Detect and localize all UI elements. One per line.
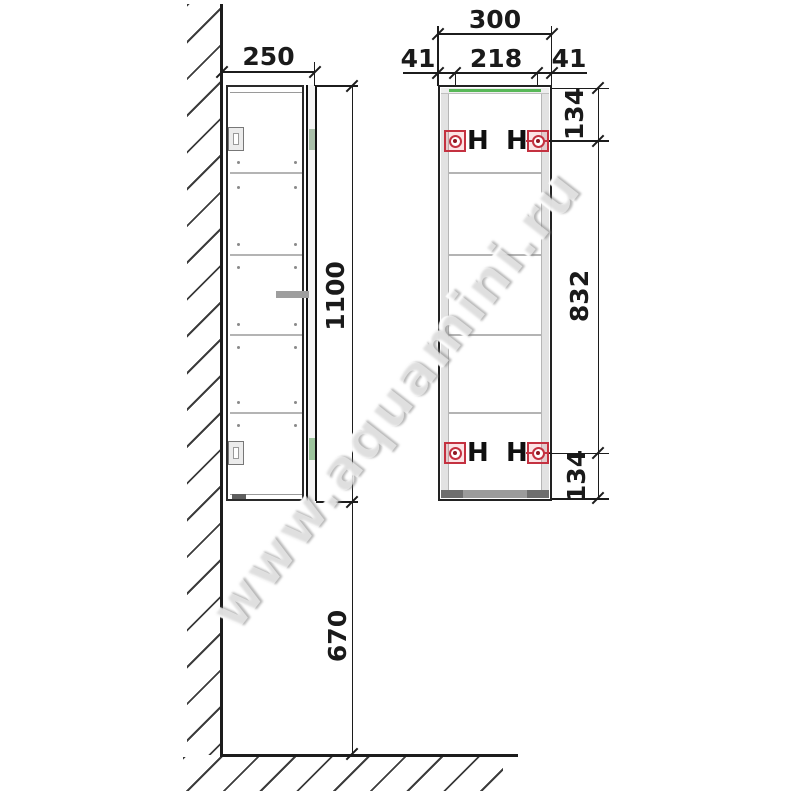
side-shelf-line [230,254,302,256]
front-bottom-foot-right [527,490,549,498]
dim-label-side-width: 250 [222,42,315,72]
hanger-center-dot [536,139,540,143]
wall-hatching [187,4,221,755]
door-hinge-mark-bottom [309,438,315,460]
side-view-inner-top-line [230,92,302,93]
screw-dot [294,266,297,269]
bracket-slot [233,133,239,145]
technical-drawing-canvas: 250 1100 670 300 41 218 41 [0,0,800,800]
side-shelf-line [230,172,302,174]
hanger-label: H [467,440,487,466]
hanger-label: H [467,128,487,154]
screw-dot [294,243,297,246]
screw-dot [294,161,297,164]
screw-dot [237,346,240,349]
screw-dot [294,346,297,349]
screw-dot [237,401,240,404]
hanger-label: H [506,440,526,466]
front-shelf-line [449,254,541,256]
front-shelf-line [449,334,541,336]
dim-label-hanger-spacing: 218 [455,44,537,74]
dim-label-bottom-margin: 134 [562,426,592,526]
bracket-slot [233,447,239,459]
screw-dot [294,186,297,189]
screw-dot [294,401,297,404]
front-bottom-foot-left [441,490,463,498]
door-handle [276,291,309,298]
hanger-label: H [506,128,526,154]
dim-label-cabinet-height: 1100 [321,246,351,346]
front-shelf-line [449,172,541,174]
wall-bracket-bottom [228,441,244,465]
floor-hatching [183,757,503,791]
door-hinge-mark-top [309,129,315,150]
hanger-marker-top-left [444,130,466,152]
front-shelf-line [449,412,541,414]
screw-dot [237,161,240,164]
side-shelf-line [230,334,302,336]
screw-dot [237,424,240,427]
hanger-center-dot [453,451,457,455]
dim-label-height-from-floor: 670 [323,586,353,686]
screw-dot [237,243,240,246]
wall-bracket-top [228,127,244,151]
screw-dot [237,266,240,269]
dim-label-left-margin: 41 [398,44,438,74]
hanger-marker-top-right [527,130,549,152]
front-top-green-rail [449,89,541,92]
dim-label-top-margin: 134 [560,64,590,164]
dim-line-134-832-134 [598,88,600,499]
hanger-center-dot [536,451,540,455]
screw-dot [294,323,297,326]
hanger-marker-bottom-right [527,442,549,464]
screw-dot [237,186,240,189]
hanger-center-dot [453,139,457,143]
wall-line [220,4,223,756]
screw-dot [294,424,297,427]
screw-dot [237,323,240,326]
side-shelf-line [230,412,302,414]
side-view-bottom-foot [232,494,246,499]
dim-label-total-width: 300 [438,5,552,35]
dim-label-hanger-vertical-spacing: 832 [565,246,595,346]
hanger-marker-bottom-left [444,442,466,464]
